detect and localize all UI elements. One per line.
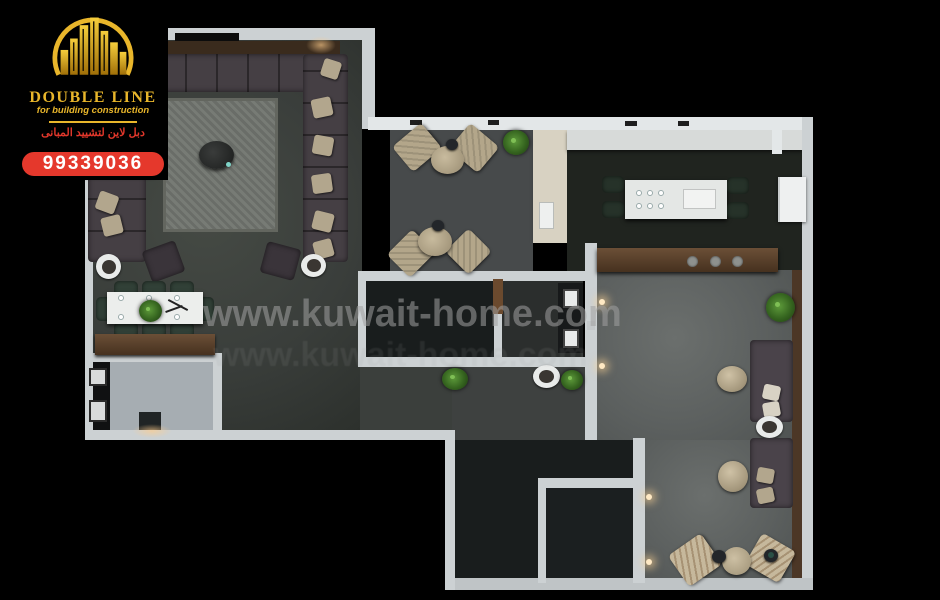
company-tagline: for building construction <box>18 105 168 117</box>
pouf <box>718 461 748 492</box>
bar-stool <box>732 256 743 267</box>
small-table <box>712 550 726 563</box>
sofa-pillow <box>311 173 333 195</box>
wall-light <box>599 363 605 369</box>
wall-light <box>646 494 652 500</box>
plant <box>503 130 529 155</box>
company-logo: DOUBLE LINE for building construction دب… <box>18 6 168 180</box>
lower-dark-room-floor <box>455 440 538 583</box>
round-side-table <box>431 146 464 174</box>
tray-table <box>756 416 783 438</box>
serving-tray <box>683 189 716 209</box>
small-table <box>446 139 458 150</box>
gold-divider <box>49 121 137 123</box>
lounge-round-table <box>722 547 751 575</box>
island-chair <box>727 177 749 194</box>
bar-stool <box>687 256 698 267</box>
window-mark <box>625 121 637 126</box>
wall-darkroom-top <box>358 271 595 281</box>
buildings-arc-icon <box>45 8 141 90</box>
wall-bottom-right-run <box>445 578 813 590</box>
peninsula-sink <box>539 202 554 229</box>
sofa-pillow <box>310 96 334 119</box>
wall-inner-room-top <box>538 478 645 488</box>
inner-room-floor <box>546 488 633 583</box>
watermark-text: www.kuwait-home.com <box>203 293 622 336</box>
wall-inner-room-left <box>538 478 546 583</box>
island-chair <box>727 202 749 219</box>
sofa-pillow <box>756 467 775 485</box>
small-table <box>432 220 444 231</box>
kitchen-appliance <box>778 177 806 222</box>
sofa-pillow <box>762 383 782 401</box>
wood-corridor-floor <box>362 129 390 273</box>
window-mark <box>678 121 689 126</box>
watermark-text-faint: www.kuwait-home.com <box>213 336 588 375</box>
bathroom-door-light <box>132 424 172 438</box>
cutlery-mark <box>165 305 183 313</box>
kitchen-floor-patch-right <box>778 250 802 270</box>
coffee-table-decor <box>226 162 231 167</box>
wall-column-topright <box>772 120 782 154</box>
side-table <box>96 254 121 279</box>
wall-inner-room-right <box>633 438 645 583</box>
round-side-table <box>418 227 452 256</box>
window-mark <box>488 120 499 125</box>
bar-stool <box>710 256 721 267</box>
sofa-pillow <box>312 134 335 156</box>
lower-dark-room-floor-ext <box>538 440 645 478</box>
kitchen-island <box>625 180 727 219</box>
bathroom-sink <box>89 368 107 386</box>
bathroom-toilet <box>89 400 107 422</box>
floorplan-render: www.kuwait-home.com www.kuwait-home.com <box>0 0 940 600</box>
console-light <box>306 36 336 54</box>
open-area-floor-left <box>360 367 452 432</box>
sideboard <box>95 334 215 355</box>
wall-bottom-left-stub <box>445 430 455 590</box>
kitchen-top-counter <box>567 130 802 150</box>
plant <box>766 293 795 322</box>
phone-number-badge: 99339036 <box>22 152 164 176</box>
pouf <box>717 366 747 392</box>
lounge-console <box>792 270 802 578</box>
dining-centerpiece-plant <box>139 300 162 322</box>
wall-top-right <box>368 117 802 130</box>
wall-light <box>646 559 652 565</box>
company-name: DOUBLE LINE <box>18 90 168 105</box>
table-decor <box>768 552 774 558</box>
island-chair <box>602 201 624 218</box>
island-chair <box>602 176 624 193</box>
wall-living-right <box>362 28 375 129</box>
tv <box>175 33 239 41</box>
side-table <box>301 254 326 277</box>
company-name-arabic: دبل لاين لتشييد المبانى <box>18 126 168 140</box>
